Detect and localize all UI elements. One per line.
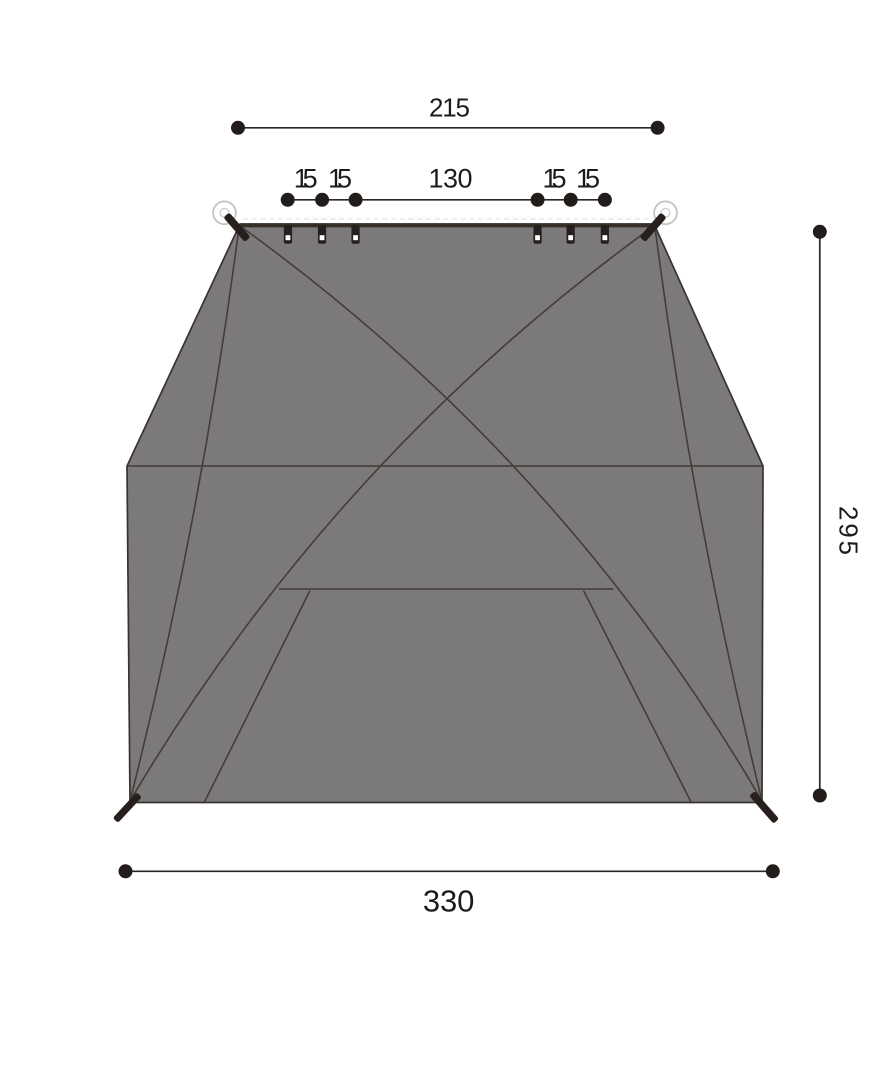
svg-text:215: 215: [429, 92, 470, 122]
svg-text:295: 295: [834, 506, 864, 555]
svg-text:15: 15: [576, 164, 600, 194]
svg-text:130: 130: [429, 164, 473, 194]
svg-text:15: 15: [543, 164, 567, 194]
svg-text:330: 330: [423, 883, 475, 918]
svg-text:15: 15: [328, 164, 352, 194]
svg-text:15: 15: [294, 164, 318, 194]
